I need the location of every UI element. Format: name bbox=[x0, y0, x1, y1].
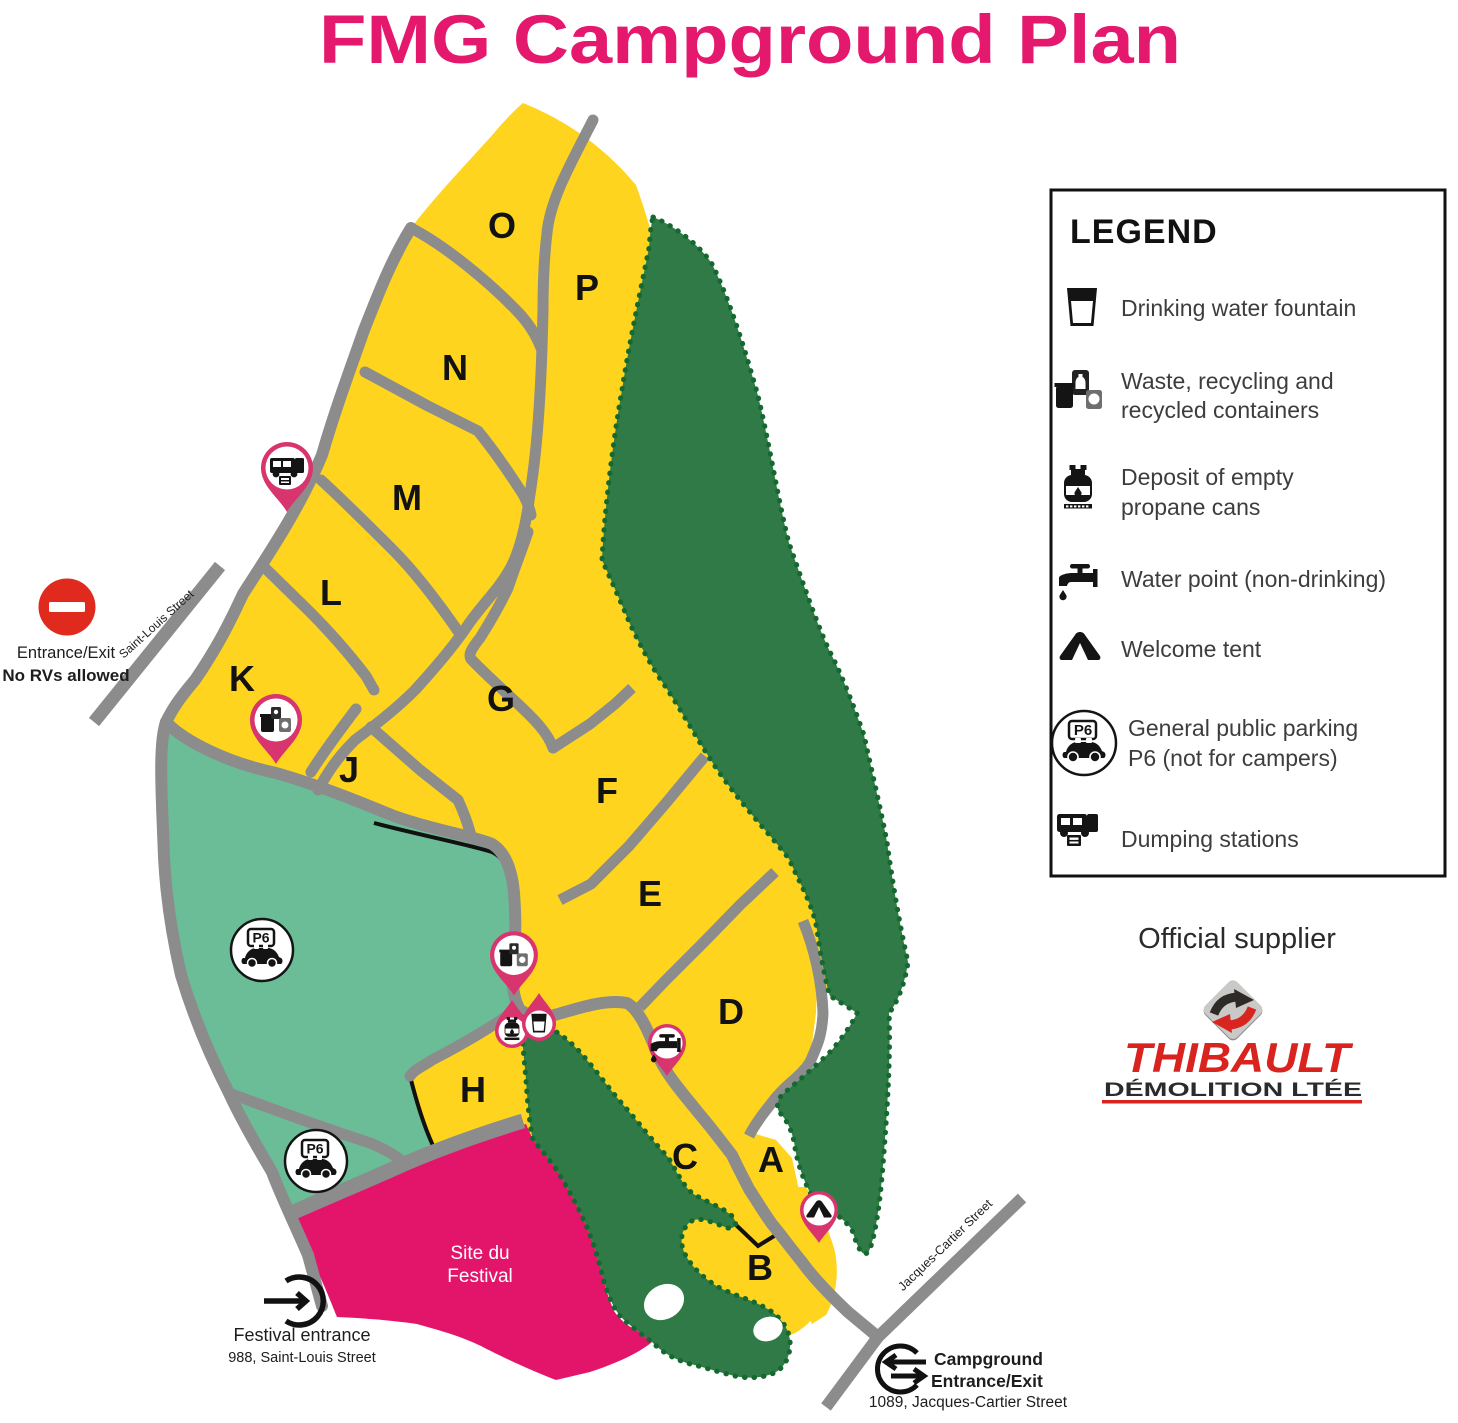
svg-text:Dumping stations: Dumping stations bbox=[1121, 826, 1299, 852]
svg-text:B: B bbox=[747, 1247, 773, 1288]
svg-text:Deposit of empty: Deposit of empty bbox=[1121, 464, 1294, 490]
svg-text:P6: P6 bbox=[252, 930, 269, 946]
svg-text:P6: P6 bbox=[306, 1141, 323, 1157]
svg-text:G: G bbox=[487, 678, 515, 719]
svg-text:FMG Campground Plan: FMG Campground Plan bbox=[319, 1, 1181, 78]
svg-text:H: H bbox=[460, 1069, 486, 1110]
svg-text:LEGEND: LEGEND bbox=[1070, 213, 1218, 251]
svg-text:No RVs allowed: No RVs allowed bbox=[2, 666, 129, 685]
svg-text:J: J bbox=[339, 749, 359, 790]
svg-text:F: F bbox=[596, 770, 618, 811]
svg-text:propane cans: propane cans bbox=[1121, 494, 1260, 520]
svg-text:Festival: Festival bbox=[447, 1266, 512, 1287]
svg-text:Drinking water fountain: Drinking water fountain bbox=[1121, 295, 1356, 321]
svg-text:THIBAULT: THIBAULT bbox=[1124, 1034, 1354, 1081]
svg-text:Water point (non-drinking): Water point (non-drinking) bbox=[1121, 566, 1386, 592]
svg-text:C: C bbox=[672, 1136, 698, 1177]
svg-text:K: K bbox=[229, 658, 255, 699]
svg-text:General public parking: General public parking bbox=[1128, 715, 1358, 741]
svg-text:P6: P6 bbox=[1074, 722, 1092, 739]
svg-text:E: E bbox=[638, 873, 662, 914]
svg-text:988, Saint-Louis Street: 988, Saint-Louis Street bbox=[228, 1350, 376, 1366]
svg-text:Welcome tent: Welcome tent bbox=[1121, 636, 1262, 662]
svg-text:A: A bbox=[758, 1139, 784, 1180]
svg-text:P6 (not for campers): P6 (not for campers) bbox=[1128, 745, 1338, 771]
svg-text:P: P bbox=[575, 267, 599, 308]
svg-text:Campground: Campground bbox=[934, 1349, 1043, 1369]
svg-text:M: M bbox=[392, 477, 422, 518]
svg-text:recycled containers: recycled containers bbox=[1121, 397, 1319, 423]
svg-text:D: D bbox=[718, 991, 744, 1032]
svg-text:N: N bbox=[442, 347, 468, 388]
svg-text:1089, Jacques-Cartier Street: 1089, Jacques-Cartier Street bbox=[869, 1394, 1068, 1411]
svg-text:O: O bbox=[488, 205, 516, 246]
svg-text:Entrance/Exit: Entrance/Exit bbox=[931, 1371, 1043, 1391]
svg-text:Festival entrance: Festival entrance bbox=[233, 1325, 370, 1345]
svg-text:Site du: Site du bbox=[450, 1243, 509, 1264]
svg-text:L: L bbox=[320, 572, 342, 613]
svg-text:DÉMOLITION LTÉE: DÉMOLITION LTÉE bbox=[1104, 1079, 1362, 1101]
svg-text:Entrance/Exit: Entrance/Exit bbox=[17, 644, 116, 662]
svg-text:Official supplier: Official supplier bbox=[1138, 923, 1336, 955]
svg-text:Waste, recycling and: Waste, recycling and bbox=[1121, 368, 1334, 394]
